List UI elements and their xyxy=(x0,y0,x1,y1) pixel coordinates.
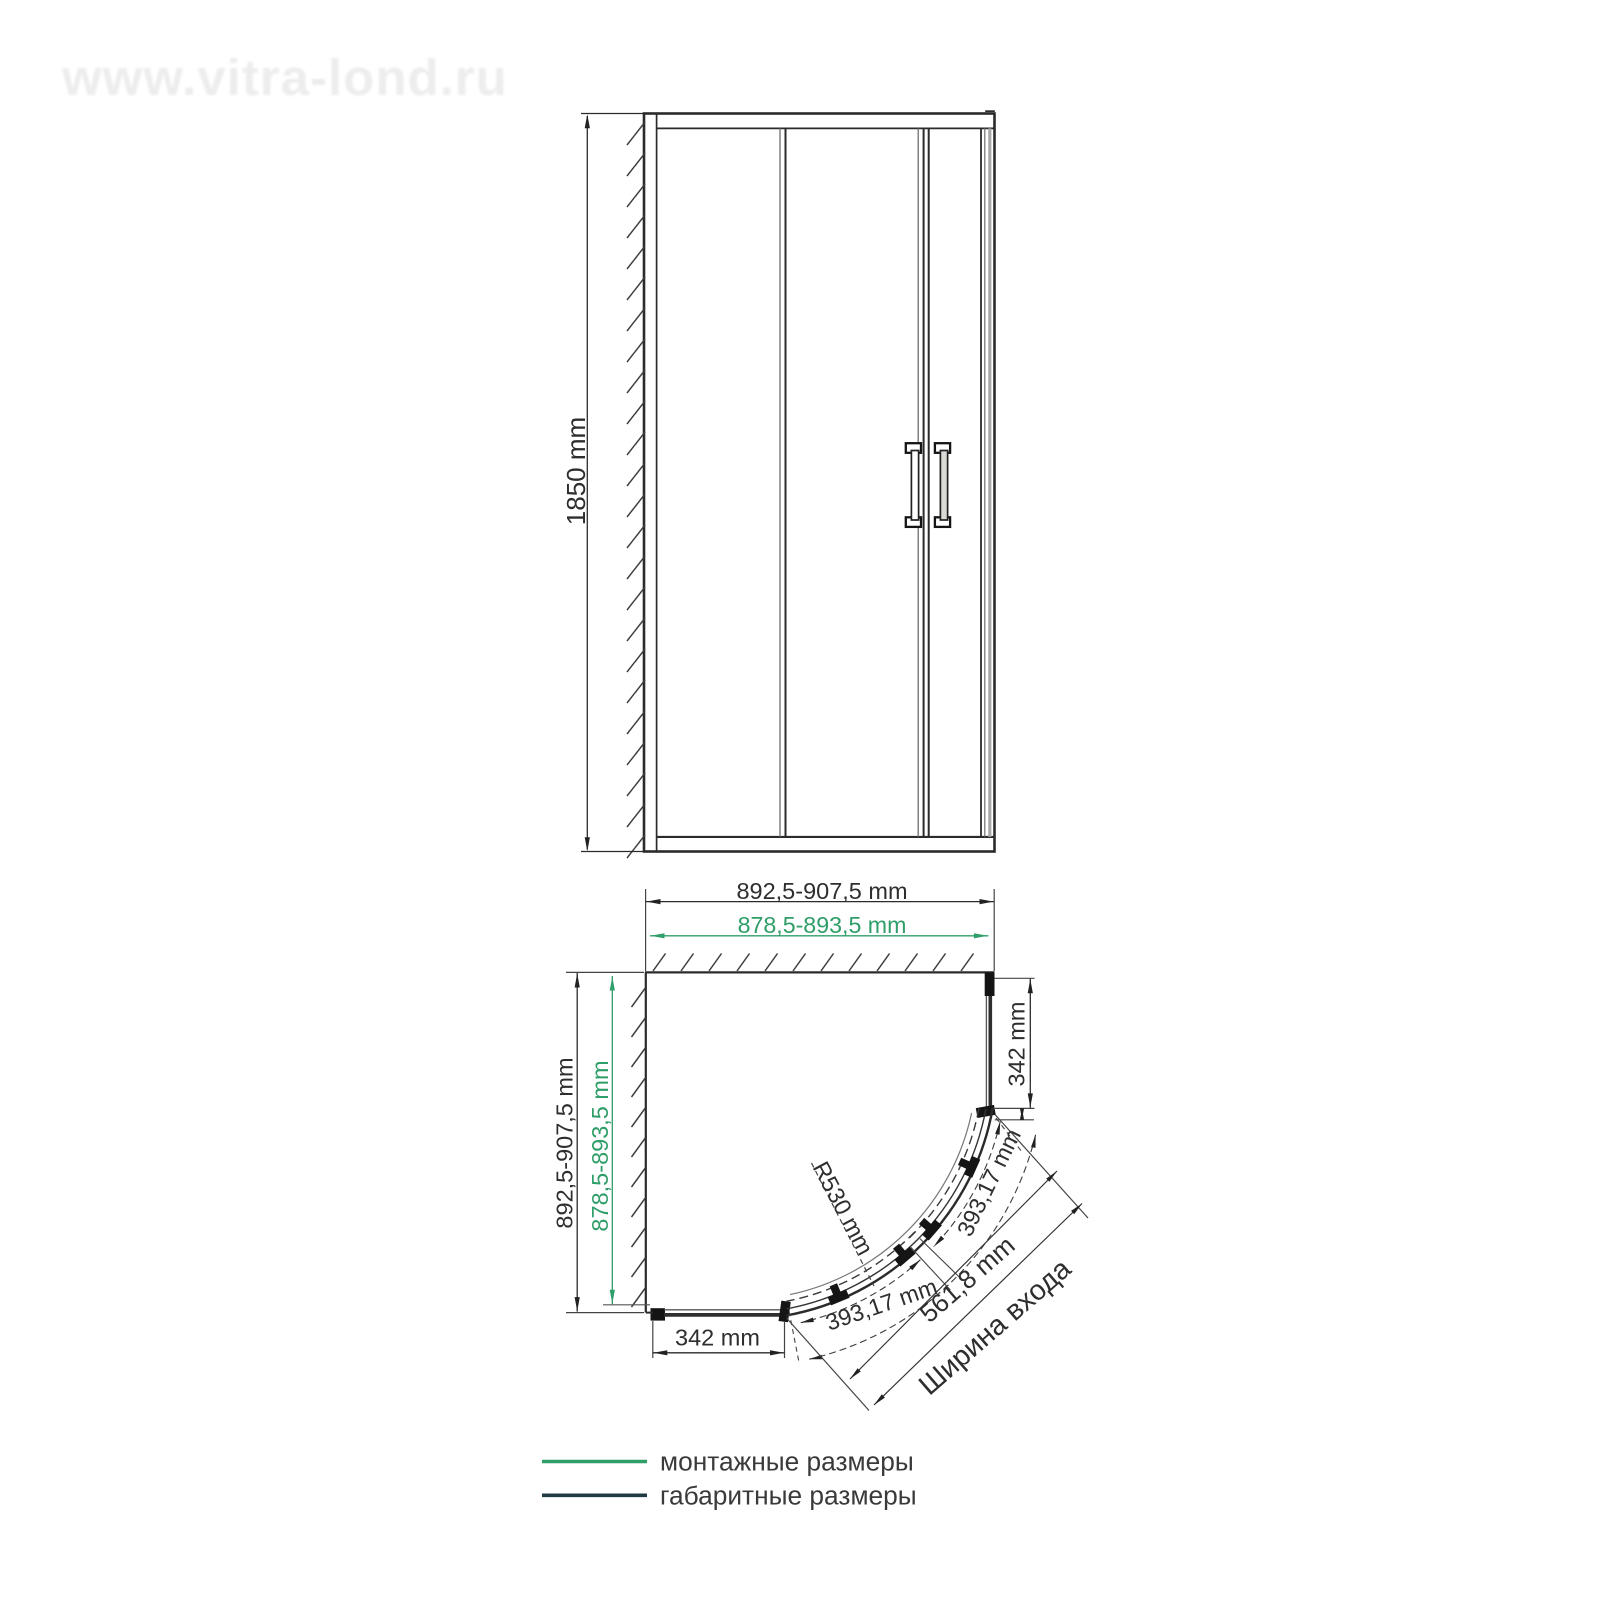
svg-text:878,5-893,5 mm: 878,5-893,5 mm xyxy=(587,1060,613,1231)
svg-text:892,5-907,5 mm: 892,5-907,5 mm xyxy=(552,1057,578,1228)
svg-text:габаритные размеры: габаритные размеры xyxy=(660,1480,917,1510)
svg-text:1850 mm: 1850 mm xyxy=(561,417,591,525)
svg-text:342 mm: 342 mm xyxy=(1004,1002,1030,1087)
svg-text:монтажные размеры: монтажные размеры xyxy=(660,1447,914,1477)
svg-text:342 mm: 342 mm xyxy=(675,1325,760,1351)
svg-text:www.vitra-lond.ru: www.vitra-lond.ru xyxy=(61,49,508,106)
svg-text:892,5-907,5 mm: 892,5-907,5 mm xyxy=(736,878,907,904)
svg-text:878,5-893,5 mm: 878,5-893,5 mm xyxy=(738,912,907,938)
